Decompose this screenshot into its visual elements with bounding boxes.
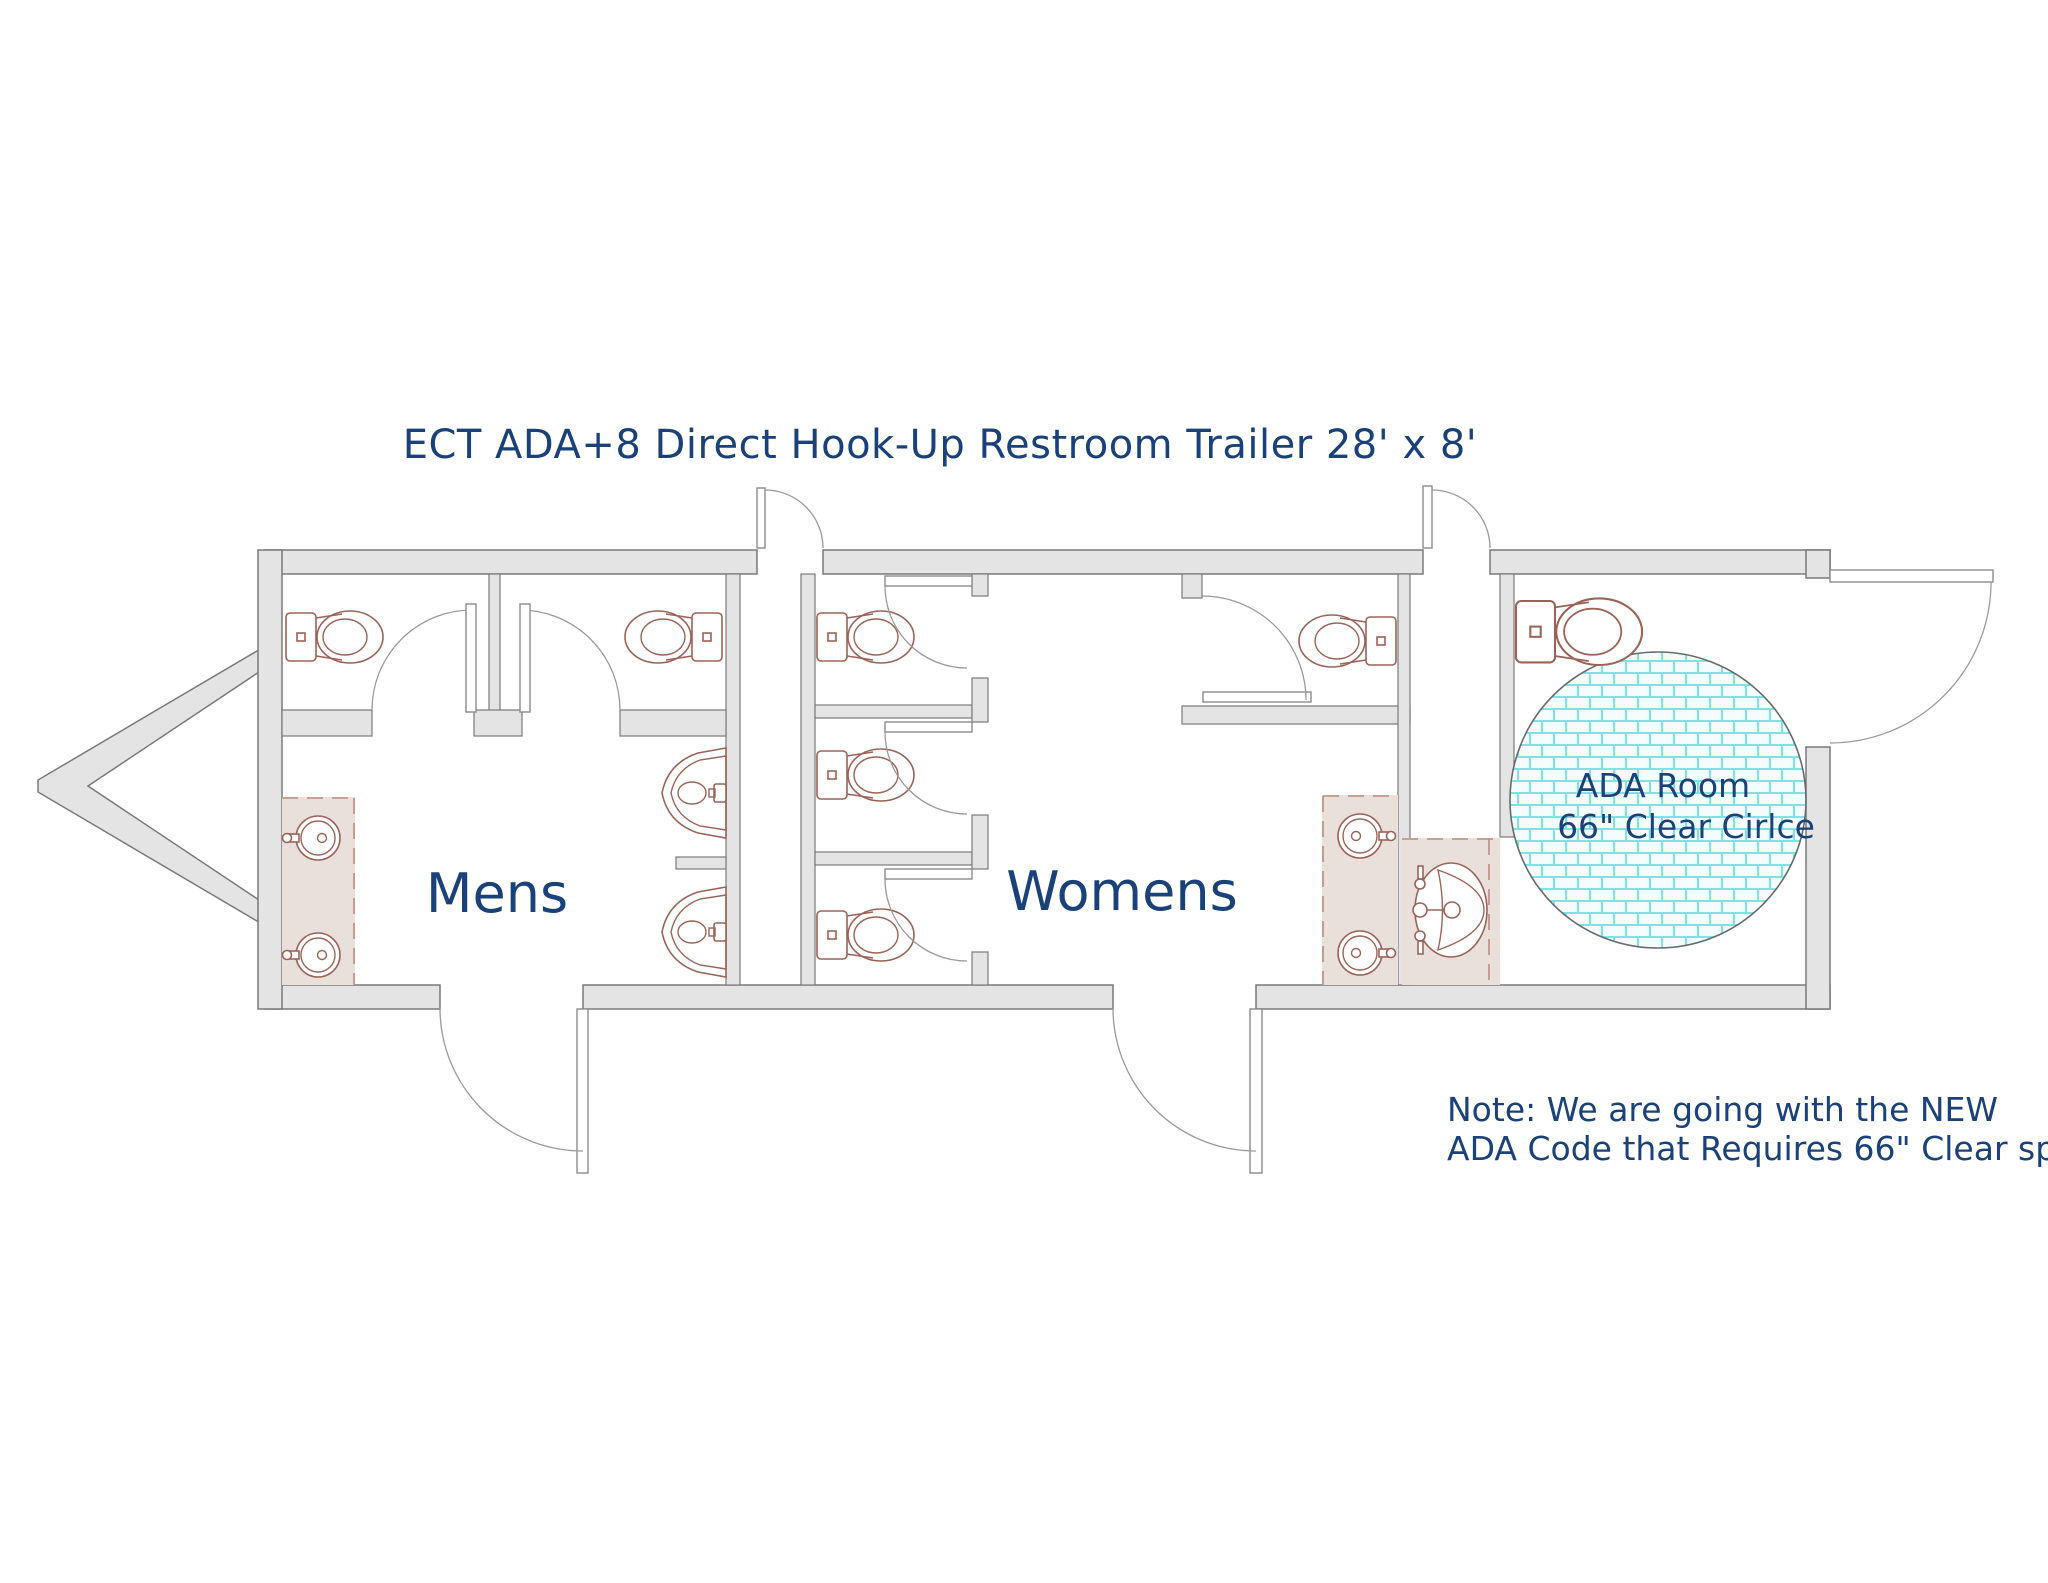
mens-stall-door-1 [372,604,476,712]
trailer-hitch [38,648,262,924]
right-wall-lower [1806,747,1830,1009]
mens-stall-front-right [620,710,726,736]
mens-entry-door [440,1008,588,1173]
corridor-right-wall [801,574,815,985]
note-line2: ADA Code that Requires 66" Clear space [1447,1129,2048,1168]
womens-front-stub-4 [972,952,988,985]
mens-toilet-2 [625,611,722,663]
womens-toilet-2 [817,749,914,801]
corridor-exterior-door [757,488,823,548]
womens-stall-door-4 [1202,596,1311,702]
womens-stall4-bottom-wall [1182,706,1410,724]
womens-front-stub-1 [972,574,988,596]
top-wall-left [265,550,757,574]
left-wall [258,550,282,1009]
womens-room-label: Womens [1006,860,1237,923]
ada-clear-circle-label: 66" Clear Cirlce [1557,807,1815,846]
corridor-left-wall [726,574,740,985]
mens-toilet-1 [286,611,383,663]
ada-side-door [1830,570,1993,743]
womens-entry-door [1113,1008,1262,1173]
plan-title: ECT ADA+8 Direct Hook-Up Restroom Traile… [403,422,1478,468]
mens-stall-door-2 [520,604,620,712]
mens-stall-front-stub [474,710,522,736]
womens-front-stub-3 [972,815,988,869]
urinal-privacy-partition [676,857,726,869]
womens-toilet-4 [1299,615,1396,667]
womens-toilet-3 [817,909,914,961]
top-wall-middle [823,550,1423,574]
bottom-wall-right [1256,985,1830,1009]
bottom-wall-left [265,985,440,1009]
bottom-wall-middle [583,985,1113,1009]
mens-stall-partition [489,574,500,714]
womens-toilet-1 [817,611,914,663]
womens-partition-1 [815,705,972,718]
note-annotation: Note: We are going with the NEW ADA Code… [1447,1090,2048,1168]
womens-stall4-stub [1182,574,1202,598]
womens-partition-2 [815,852,972,865]
mens-stall-front-left [282,710,372,736]
ada-room-label: ADA Room [1576,766,1750,805]
womens-front-stub-2 [972,678,988,722]
mens-urinal-1 [662,748,726,838]
note-line1: Note: We are going with the NEW [1447,1090,1998,1129]
mens-urinal-2 [662,887,726,977]
ada-toilet [1516,598,1642,665]
ada-clear-circle: ADA Room 66" Clear Cirlce [1510,652,1815,948]
urinals [662,748,726,977]
ada-vestibule-exterior-door [1423,486,1490,548]
mens-room-label: Mens [426,862,568,925]
floor-plan-drawing: ECT ADA+8 Direct Hook-Up Restroom Traile… [0,0,2048,1583]
floor-plan-page: ECT ADA+8 Direct Hook-Up Restroom Traile… [0,0,2048,1583]
right-wall-upper [1806,550,1830,578]
top-wall-right [1490,550,1830,574]
